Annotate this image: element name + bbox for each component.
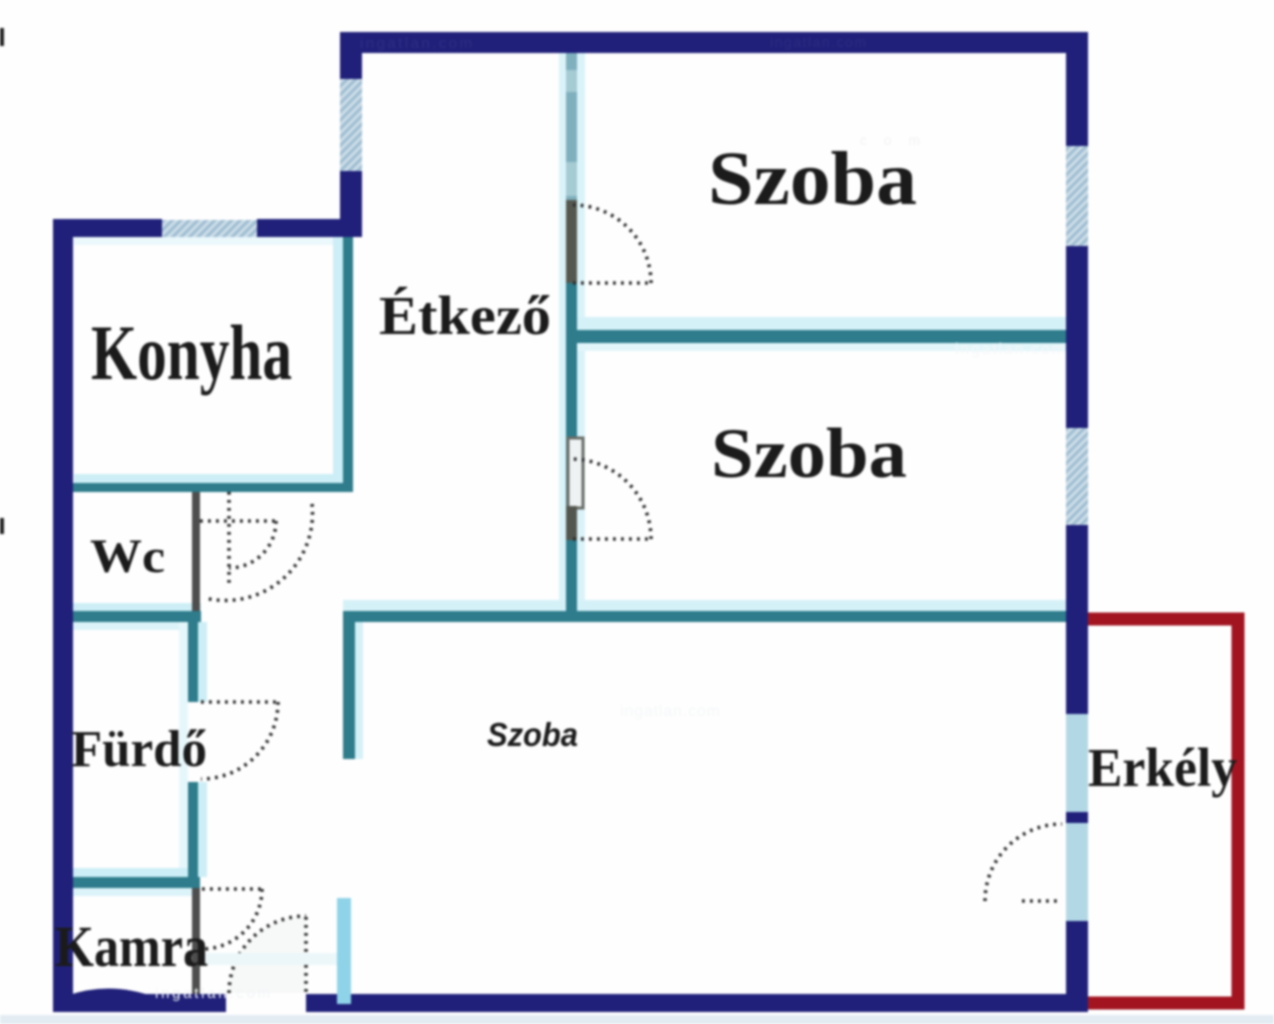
svg-text:Szoba: Szoba xyxy=(711,415,907,493)
svg-text:Erkély: Erkély xyxy=(1088,737,1237,798)
svg-text:Fürdő: Fürdő xyxy=(71,721,207,778)
svg-text:Étkező: Étkező xyxy=(379,285,551,346)
svg-text:Szoba: Szoba xyxy=(487,716,578,753)
svg-text:ingatlan.com: ingatlan.com xyxy=(770,34,866,50)
svg-text:Kamra: Kamra xyxy=(55,914,208,979)
svg-text:ingatlan.com: ingatlan.com xyxy=(955,341,1065,358)
svg-text:ingatlan.com: ingatlan.com xyxy=(620,703,720,720)
svg-text:Szoba: Szoba xyxy=(708,137,917,221)
svg-text:Konyha: Konyha xyxy=(91,309,292,396)
svg-text:Wc: Wc xyxy=(90,530,165,583)
svg-text:ingatlan.com: ingatlan.com xyxy=(360,35,472,52)
svg-text:ingatlan.com: ingatlan.com xyxy=(155,985,270,1002)
